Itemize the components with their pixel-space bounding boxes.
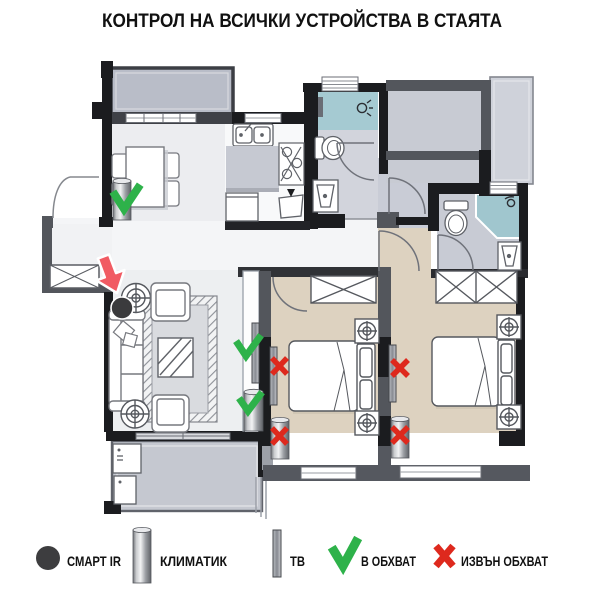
svg-text:СМАРТ IR: СМАРТ IR	[67, 553, 121, 569]
svg-text:КОНТРОЛ НА ВСИЧКИ УСТРОЙСТВА В: КОНТРОЛ НА ВСИЧКИ УСТРОЙСТВА В СТАЯТА	[102, 10, 502, 32]
svg-text:ИЗВЪН ОБХВАТ: ИЗВЪН ОБХВАТ	[461, 553, 548, 569]
svg-text:В ОБХВАТ: В ОБХВАТ	[361, 553, 416, 569]
svg-text:КЛИМАТИК: КЛИМАТИК	[160, 553, 227, 569]
svg-text:ТВ: ТВ	[290, 553, 305, 569]
